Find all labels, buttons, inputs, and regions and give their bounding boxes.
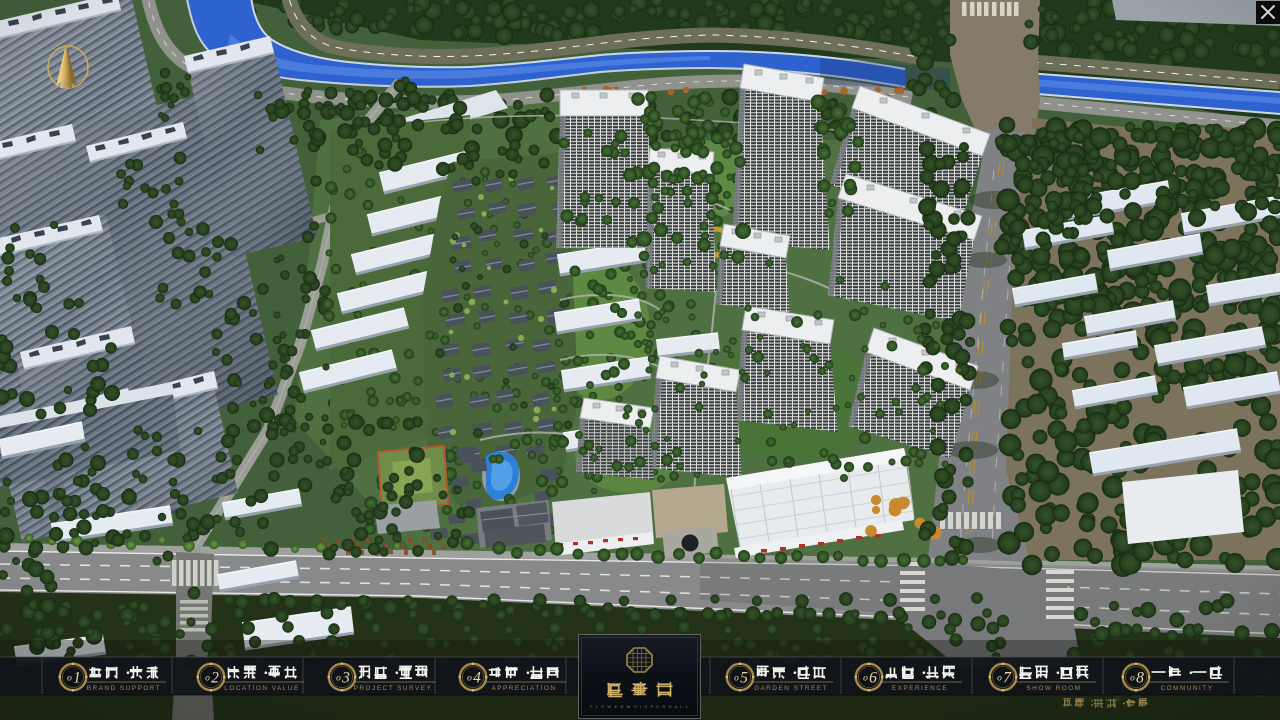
svg-text:4: 4 <box>473 670 481 687</box>
svg-text:F L O W E R W H I S P E R H: F L O W E R W H I S P E R H A L L <box>590 704 689 709</box>
svg-text:o: o <box>205 674 210 684</box>
svg-text:8: 8 <box>1136 670 1144 687</box>
svg-text:7: 7 <box>1003 670 1012 687</box>
svg-text:3: 3 <box>341 670 350 687</box>
svg-text:o: o <box>863 674 868 684</box>
svg-text:o: o <box>997 674 1002 684</box>
svg-text:GARDEN STREET: GARDEN STREET <box>754 685 828 692</box>
svg-text:PROJECT SURVEY: PROJECT SURVEY <box>354 685 433 692</box>
svg-text:o: o <box>467 674 472 684</box>
svg-text:o: o <box>336 674 341 684</box>
svg-text:5: 5 <box>740 670 748 687</box>
svg-text:6: 6 <box>869 670 877 687</box>
svg-text:BRAND SUPPORT: BRAND SUPPORT <box>87 685 161 692</box>
svg-text:2: 2 <box>211 670 219 687</box>
svg-text:APPRECIATION: APPRECIATION <box>491 685 556 692</box>
svg-text:SHOW ROOM: SHOW ROOM <box>1026 685 1081 692</box>
svg-text:o: o <box>1130 674 1135 684</box>
svg-text:1: 1 <box>73 670 81 687</box>
svg-text:o: o <box>67 674 72 684</box>
svg-text:EXPERIENCE: EXPERIENCE <box>892 685 948 692</box>
svg-text:o: o <box>734 674 739 684</box>
svg-text:COMMUNITY: COMMUNITY <box>1161 685 1214 692</box>
svg-text:LOCATION VALUE: LOCATION VALUE <box>224 685 299 692</box>
